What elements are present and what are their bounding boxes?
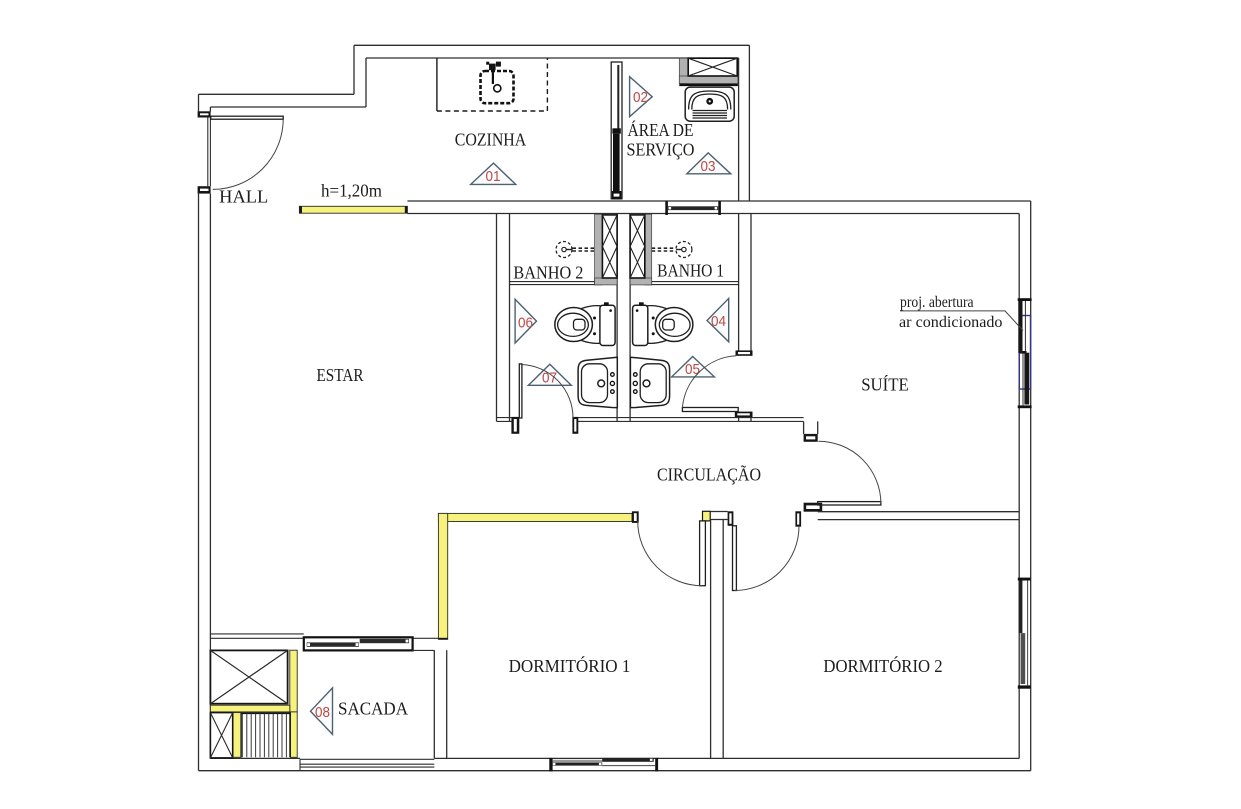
svg-text:SUÍTE: SUÍTE (861, 374, 909, 395)
svg-text:proj. abertura: proj. abertura (900, 294, 974, 311)
svg-text:SACADA: SACADA (338, 699, 408, 719)
svg-text:SERVIÇO: SERVIÇO (627, 139, 695, 159)
svg-text:01: 01 (486, 168, 501, 185)
svg-text:CIRCULAÇÃO: CIRCULAÇÃO (657, 463, 761, 484)
svg-text:ÁREA DE: ÁREA DE (628, 119, 694, 140)
svg-text:05: 05 (685, 361, 700, 378)
svg-text:h=1,20m: h=1,20m (321, 180, 382, 200)
svg-text:DORMITÓRIO 2: DORMITÓRIO 2 (823, 655, 942, 676)
svg-text:HALL: HALL (219, 187, 268, 207)
svg-text:BANHO 2: BANHO 2 (513, 262, 583, 282)
svg-text:DORMITÓRIO 1: DORMITÓRIO 1 (509, 655, 631, 676)
svg-text:08: 08 (315, 704, 330, 721)
svg-text:ESTAR: ESTAR (317, 365, 364, 385)
svg-text:03: 03 (701, 158, 716, 175)
svg-text:04: 04 (711, 313, 726, 330)
svg-text:COZINHA: COZINHA (455, 130, 527, 150)
svg-text:06: 06 (518, 314, 533, 331)
svg-text:ar condicionado: ar condicionado (899, 314, 1003, 331)
svg-text:BANHO 1: BANHO 1 (657, 261, 724, 281)
svg-text:02: 02 (633, 89, 648, 106)
